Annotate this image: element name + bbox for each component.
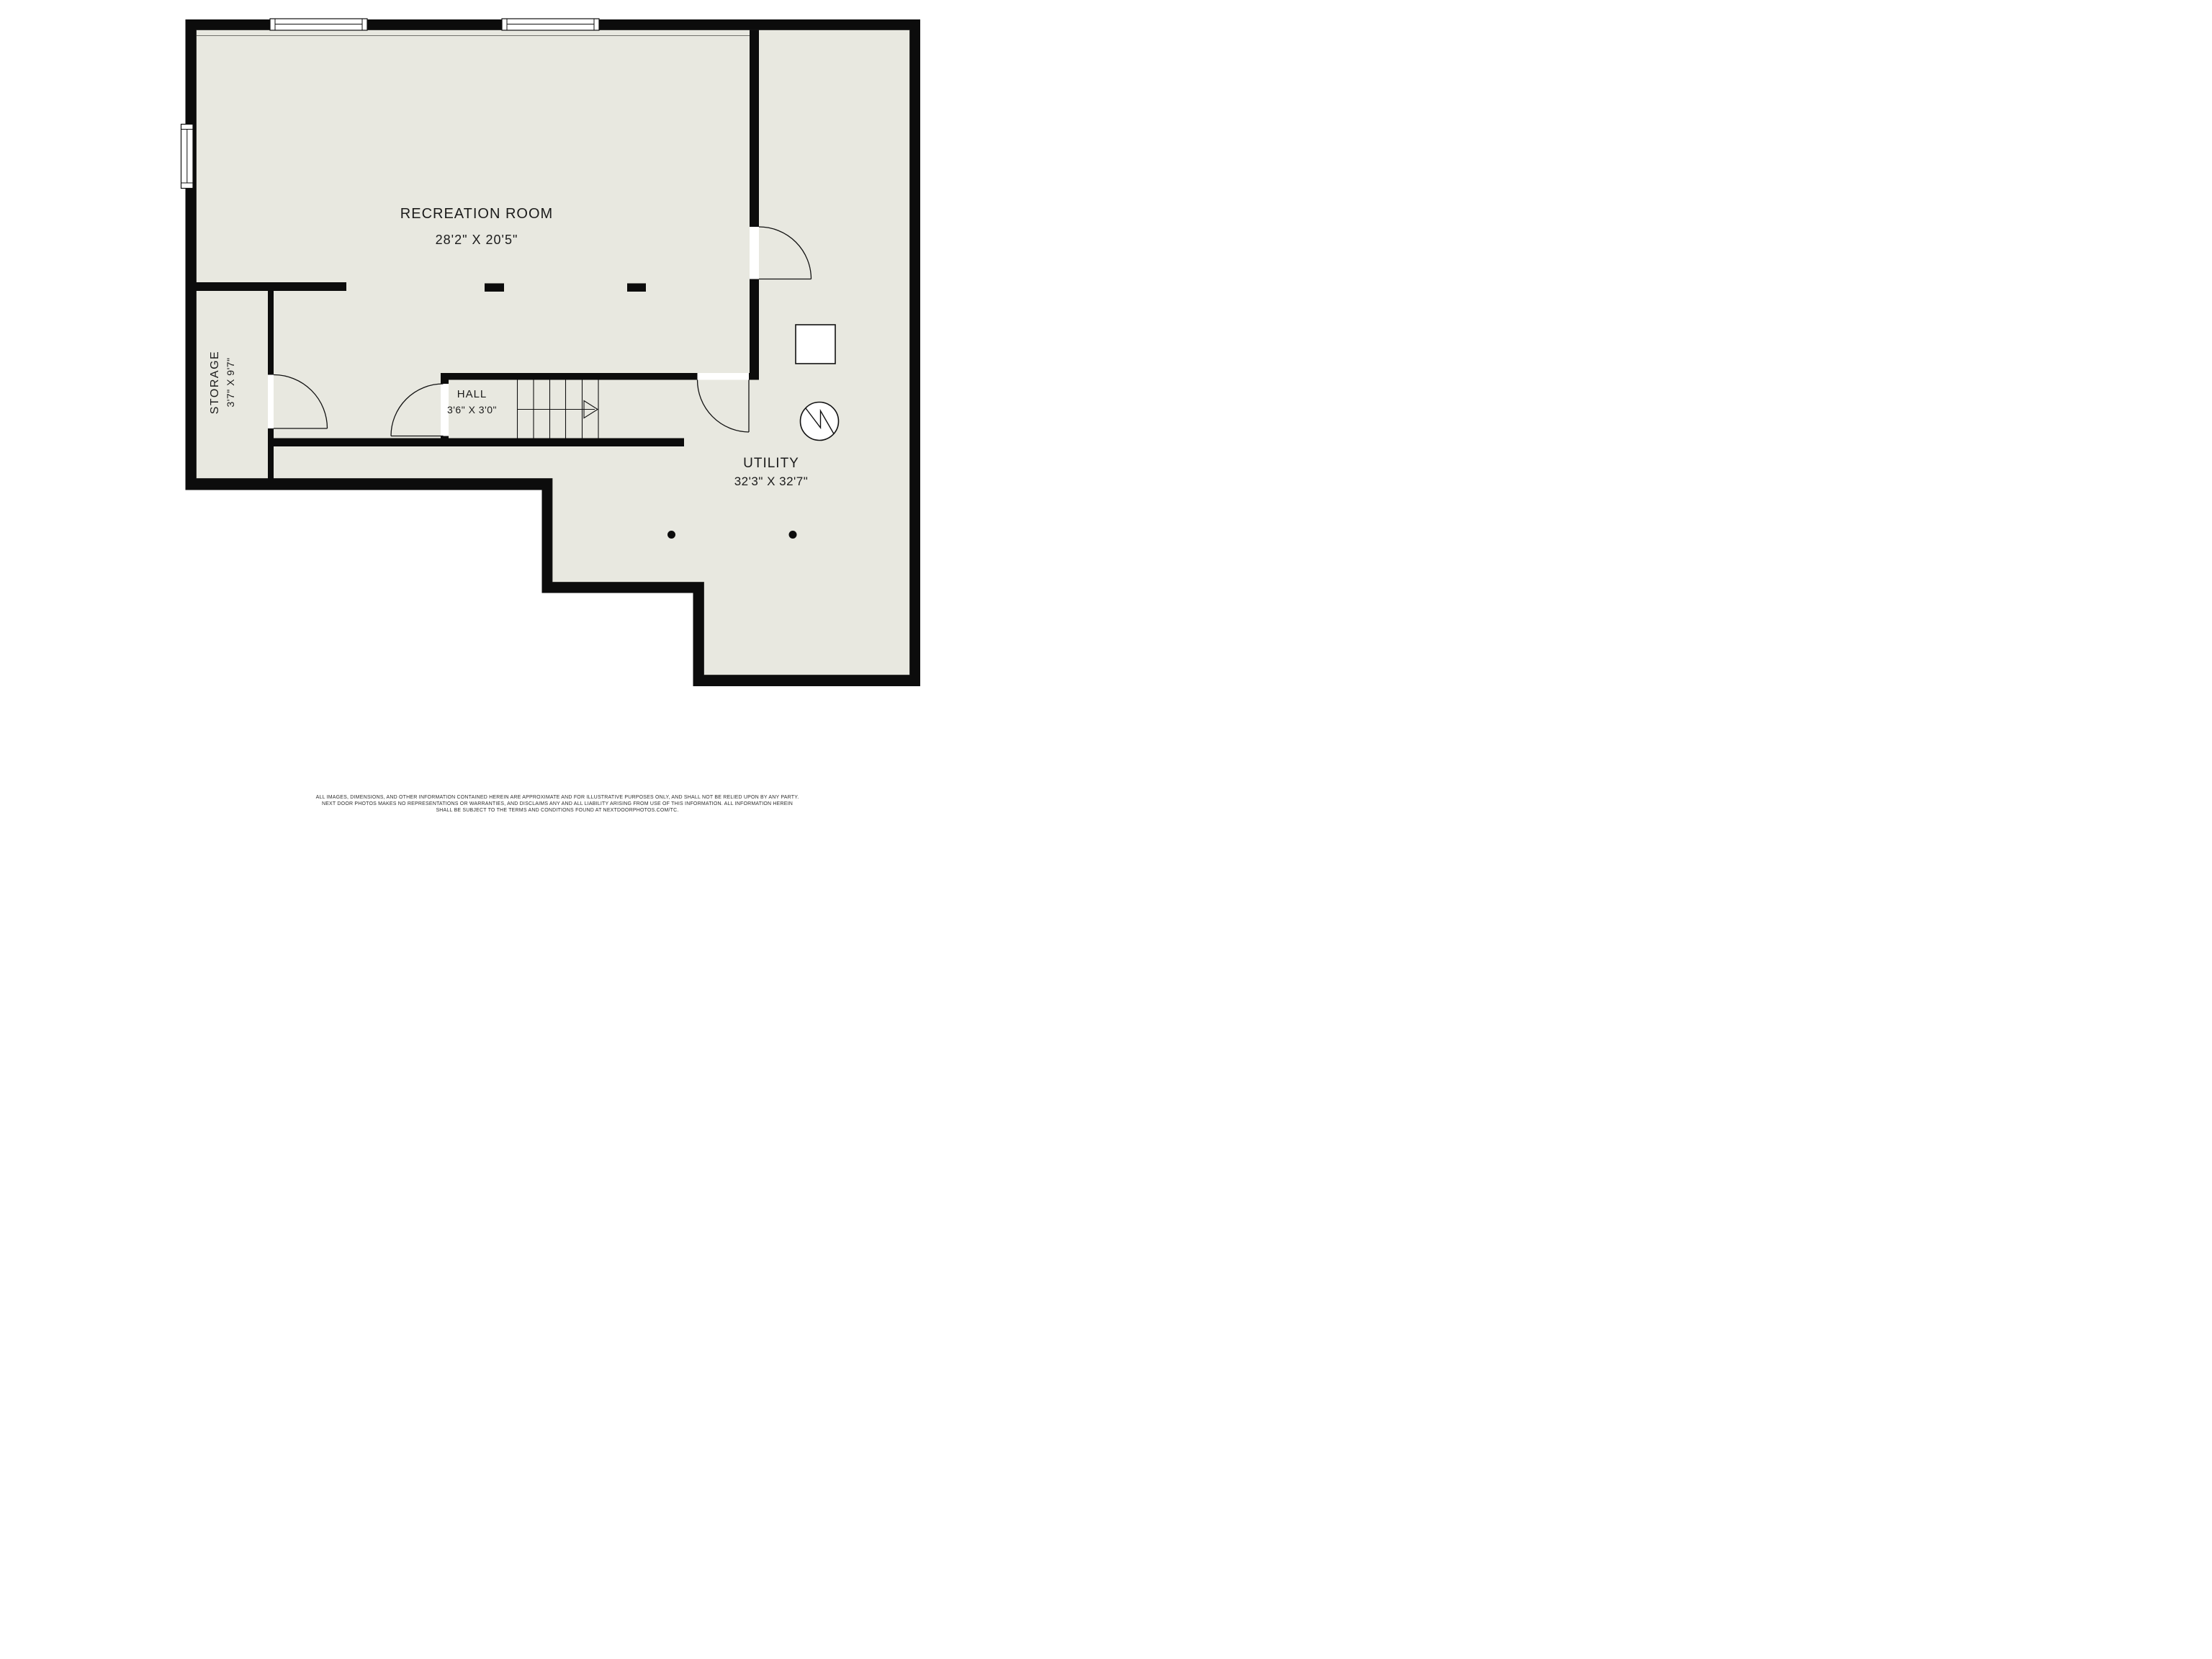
support-post-dot-icon xyxy=(789,531,797,539)
wall-storage-right-upper xyxy=(268,291,274,375)
window-icon xyxy=(181,125,194,189)
disclaimer-line: NEXT DOOR PHOTOS MAKES NO REPRESENTATION… xyxy=(0,801,1106,807)
support-post-dot-icon xyxy=(667,531,675,539)
disclaimer-footer: ALL IMAGES, DIMENSIONS, AND OTHER INFORM… xyxy=(0,794,1106,814)
wall-hall-top xyxy=(441,373,698,380)
water-heater-circle-icon xyxy=(801,403,839,441)
window-icon xyxy=(270,19,367,30)
floor-plan-page: RECREATION ROOM 28'2" X 20'5" STORAGE 3'… xyxy=(0,0,1106,829)
door-opening-storage xyxy=(268,375,274,429)
wall-hall-left-upper xyxy=(441,373,449,384)
window-icon xyxy=(502,19,599,30)
wall-stub-post-right xyxy=(627,284,646,292)
wall-hall-bottom xyxy=(274,439,684,447)
door-opening-utility-south xyxy=(698,373,750,380)
wall-storage-right-lower xyxy=(268,428,274,490)
wall-rec-utility-lower xyxy=(750,279,759,380)
disclaimer-line: SHALL BE SUBJECT TO THE TERMS AND CONDIT… xyxy=(0,807,1106,814)
wall-rec-utility-upper xyxy=(750,30,759,228)
door-opening-hall-left xyxy=(441,384,449,436)
wall-stub-post-left xyxy=(485,284,504,292)
wall-storage-top xyxy=(187,282,346,291)
furnace-square-icon xyxy=(796,325,835,364)
door-opening-utility-east xyxy=(750,227,759,279)
disclaimer-line: ALL IMAGES, DIMENSIONS, AND OTHER INFORM… xyxy=(0,794,1106,801)
wall-hall-top-stub xyxy=(749,373,759,380)
floor-plan-drawing xyxy=(0,0,1106,829)
